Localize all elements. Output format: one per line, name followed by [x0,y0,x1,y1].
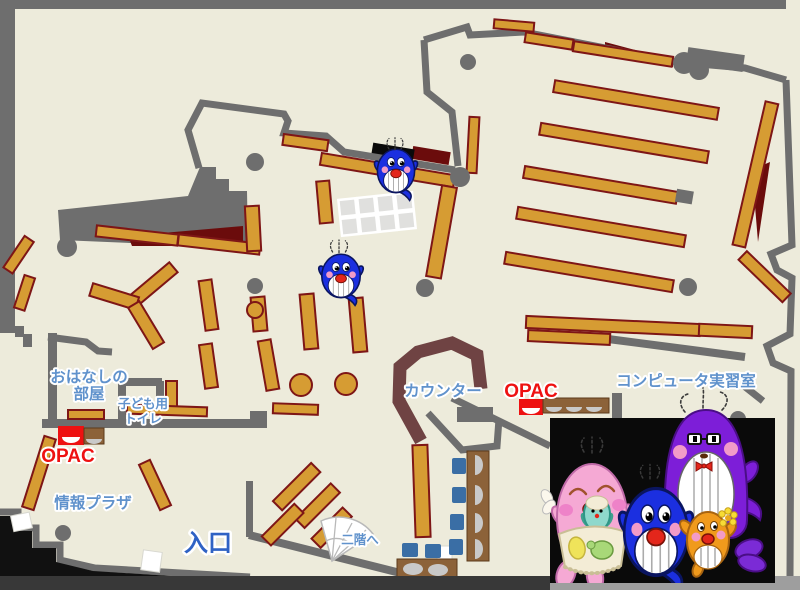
bookshelf [412,445,430,537]
computer-room-label: コンピュータ実習室 [616,371,756,390]
round-table [335,373,357,395]
stairs-label: 二階へ [341,532,379,547]
bookshelf [273,403,318,415]
opac-station-left [58,426,104,445]
storytelling-room-label-line2: 部屋 [73,384,104,403]
door [11,512,33,532]
kids-toilet-label-line1: 子ども用 [118,397,168,411]
pillar [57,237,77,257]
library-floor-map: おはなしの 部屋 子ども用 トイレ OPAC 情報プラザ 入口 二階へ カウンタ… [0,0,800,590]
round-table [290,374,312,396]
top-border-wall [0,0,786,9]
chair [450,514,464,530]
kids-toilet-label-line2: トイレ [124,412,162,426]
pillar [416,279,434,297]
bookshelf [316,181,333,224]
grid-table [338,192,415,236]
chair [452,458,466,474]
door [141,550,163,572]
bookshelf [245,206,261,252]
opac-label-right: OPAC [504,381,558,402]
pillar [679,278,697,296]
counter-label: カウンター [404,382,482,400]
bookshelf [699,324,753,338]
entrance-label: 入口 [184,530,232,557]
pillar [247,278,263,294]
pillar [55,525,71,541]
pillar [460,54,476,70]
round-table [247,302,263,318]
pillar [246,153,264,171]
floor-map-canvas: おはなしの 部屋 子ども用 トイレ OPAC 情報プラザ 入口 二階へ カウンタ… [0,0,800,590]
chair [425,544,441,558]
storytelling-room-label-line1: おはなしの [50,368,128,386]
chair [449,539,463,555]
chair [402,543,418,557]
pillar [689,60,709,80]
info-plaza-label: 情報プラザ [54,493,132,512]
left-border-wall [0,0,15,333]
pillar [450,167,470,187]
chair [452,487,466,503]
bookshelf [68,410,104,419]
mascot-family-photo [539,388,800,590]
counter-desk [457,407,493,422]
entrance-wall [246,481,253,537]
opac-label-left: OPAC [41,446,95,467]
bookshelf [467,117,480,173]
